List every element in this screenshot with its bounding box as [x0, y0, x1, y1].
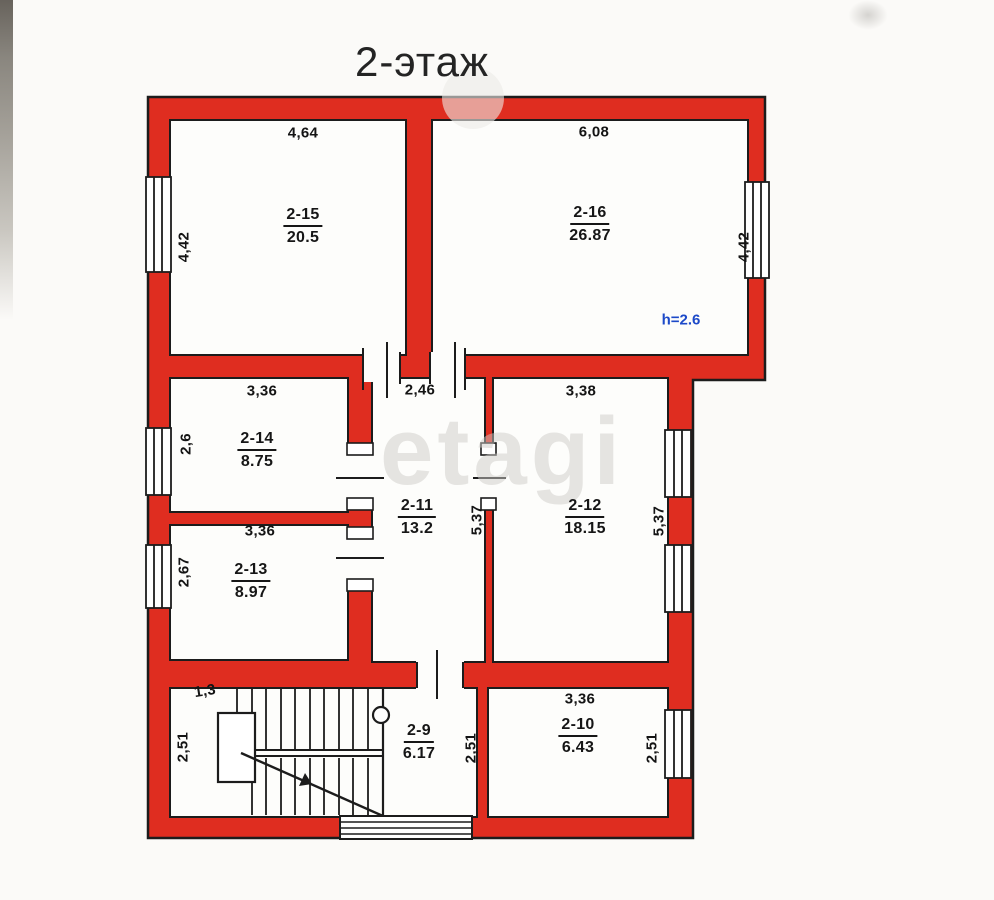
room-label-2-16: 2-16 26.87 [569, 204, 611, 244]
window-room-2-14 [146, 428, 171, 495]
room-area: 8.97 [235, 582, 267, 602]
room-label-2-12: 2-12 18.15 [564, 497, 606, 537]
room-id: 2-9 [404, 722, 434, 743]
dim-room-2-14-width: 3,36 [247, 383, 277, 400]
stair-post-circle [373, 707, 389, 723]
room-label-2-13: 2-13 8.97 [231, 561, 270, 601]
ceiling-height-note: h=2.6 [662, 312, 701, 329]
room-id: 2-12 [565, 497, 604, 518]
stair-landing [218, 713, 255, 782]
floor-plan-page: etagi 2-этаж 2-15 20.5 2-16 26.87 2-14 8… [0, 0, 994, 900]
room-label-2-15: 2-15 20.5 [283, 206, 322, 246]
watermark-text: etagi [380, 397, 624, 507]
room-id: 2-10 [558, 716, 597, 737]
dim-room-2-16-depth: 4,42 [736, 232, 753, 262]
dim-hall-depth: 2,51 [175, 732, 192, 762]
room-area: 20.5 [287, 227, 319, 247]
dim-room-2-12-depth: 5,37 [651, 506, 668, 536]
dim-corridor-depth: 5,37 [469, 505, 486, 535]
room-area: 26.87 [569, 225, 611, 245]
room-id: 2-16 [570, 204, 609, 225]
dim-stair-width: 1,3 [193, 681, 217, 701]
room-id: 2-13 [231, 561, 270, 582]
dim-room-2-9-depth: 2,51 [463, 733, 480, 763]
dim-room-2-15-depth: 4,42 [176, 232, 193, 262]
room-label-2-9: 2-9 6.17 [403, 722, 435, 762]
room-label-2-10: 2-10 6.43 [558, 716, 597, 756]
entrance-steps [340, 816, 472, 839]
window-room-2-10 [665, 710, 691, 778]
room-area: 13.2 [401, 518, 433, 538]
dim-room-2-14-depth: 2,6 [178, 433, 195, 455]
dim-room-2-15-width: 4,64 [288, 125, 318, 142]
room-area: 8.75 [241, 451, 273, 471]
room-id: 2-11 [398, 497, 436, 518]
scan-corner-smudge [848, 0, 888, 30]
room-area: 6.43 [562, 737, 594, 757]
dim-room-2-10-depth: 2,51 [644, 733, 661, 763]
dim-corridor-width: 2,46 [405, 382, 435, 399]
dim-room-2-10-width: 3,36 [565, 691, 595, 708]
room-id: 2-15 [283, 206, 322, 227]
room-label-2-11: 2-11 13.2 [398, 497, 436, 537]
window-room-2-13 [146, 545, 171, 608]
room-id: 2-14 [237, 430, 276, 451]
window-room-2-12-upper [665, 430, 691, 497]
room-area: 18.15 [564, 518, 606, 538]
room-label-2-14: 2-14 8.75 [237, 430, 276, 470]
dim-room-2-13-depth: 2,67 [176, 557, 193, 587]
dim-room-2-13-width: 3,36 [245, 523, 275, 540]
dim-room-2-12-width: 3,38 [566, 383, 596, 400]
dim-room-2-16-width: 6,08 [579, 124, 609, 141]
window-room-2-15 [146, 177, 171, 272]
room-area: 6.17 [403, 743, 435, 763]
window-room-2-12-lower [665, 545, 691, 612]
page-title: 2-этаж [355, 38, 489, 86]
scan-edge-artifact [0, 0, 13, 320]
window-room-2-16 [745, 182, 769, 278]
